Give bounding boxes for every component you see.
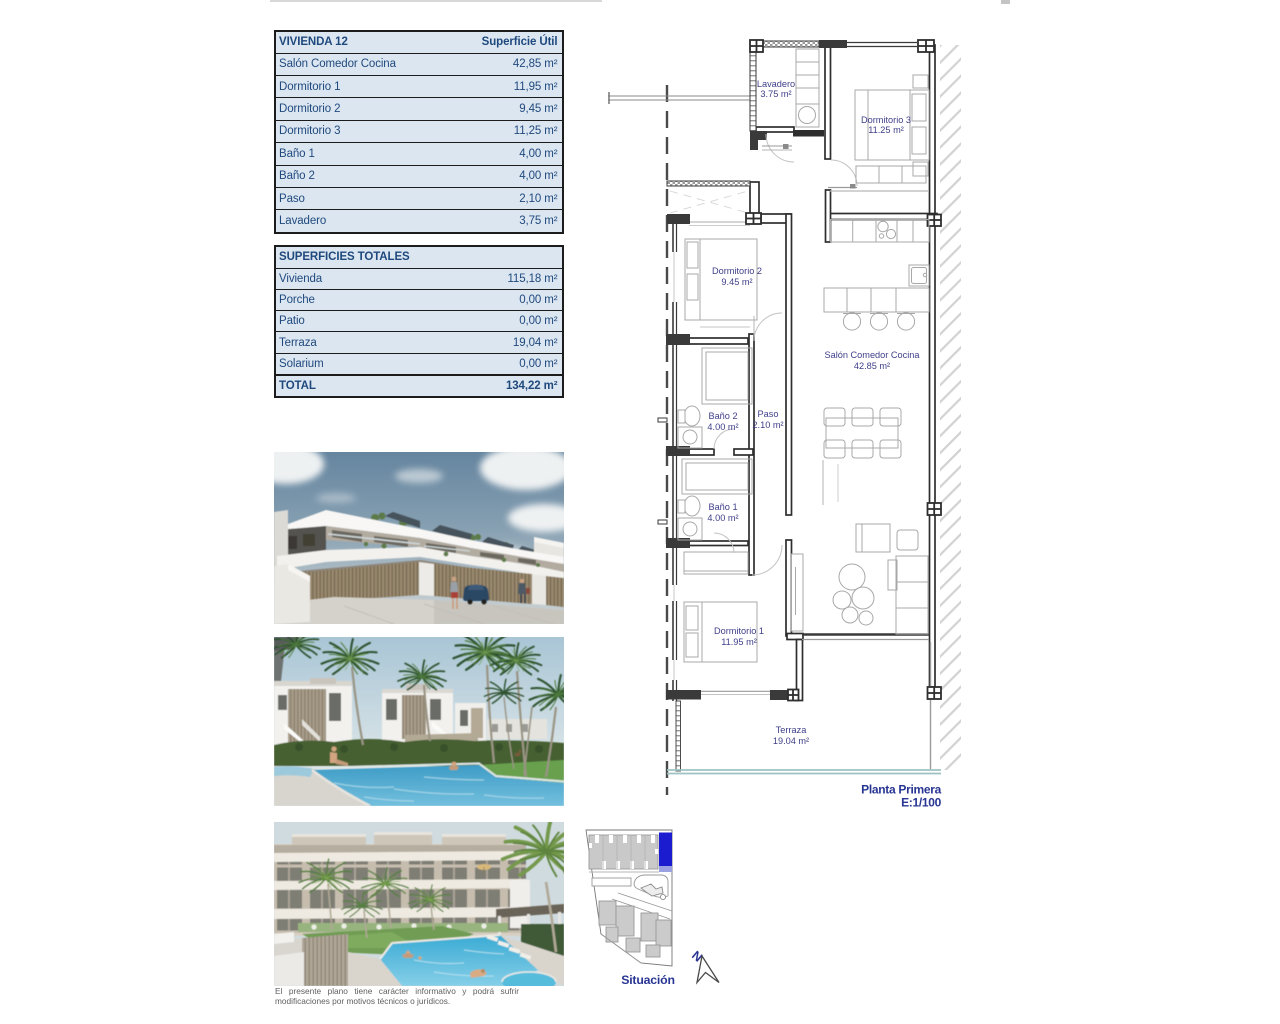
svg-text:Baño 2: Baño 2 bbox=[708, 411, 737, 421]
svg-text:Planta Primera: Planta Primera bbox=[861, 783, 941, 797]
svg-text:Situación: Situación bbox=[621, 973, 675, 987]
svg-text:2.10 m²: 2.10 m² bbox=[752, 420, 783, 430]
svg-text:Dormitorio 2: Dormitorio 2 bbox=[712, 266, 762, 276]
svg-text:Salón Comedor Cocina: Salón Comedor Cocina bbox=[825, 350, 921, 360]
svg-text:Lavadero: Lavadero bbox=[757, 79, 795, 89]
svg-text:Dormitorio 3: Dormitorio 3 bbox=[861, 115, 911, 125]
svg-text:4.00 m²: 4.00 m² bbox=[707, 513, 738, 523]
svg-text:Dormitorio 1: Dormitorio 1 bbox=[714, 626, 764, 636]
svg-text:11.95 m²: 11.95 m² bbox=[721, 637, 757, 647]
svg-text:E:1/100: E:1/100 bbox=[901, 796, 942, 810]
svg-text:19.04 m²: 19.04 m² bbox=[773, 736, 809, 746]
svg-text:Terraza: Terraza bbox=[776, 725, 808, 735]
svg-text:42.85 m²: 42.85 m² bbox=[854, 361, 890, 371]
svg-text:Paso: Paso bbox=[758, 409, 779, 419]
svg-text:3.75 m²: 3.75 m² bbox=[760, 89, 791, 99]
svg-text:4.00 m²: 4.00 m² bbox=[707, 422, 738, 432]
svg-text:11.25 m²: 11.25 m² bbox=[868, 125, 904, 135]
svg-text:9.45 m²: 9.45 m² bbox=[721, 277, 752, 287]
svg-text:Baño 1: Baño 1 bbox=[708, 502, 737, 512]
